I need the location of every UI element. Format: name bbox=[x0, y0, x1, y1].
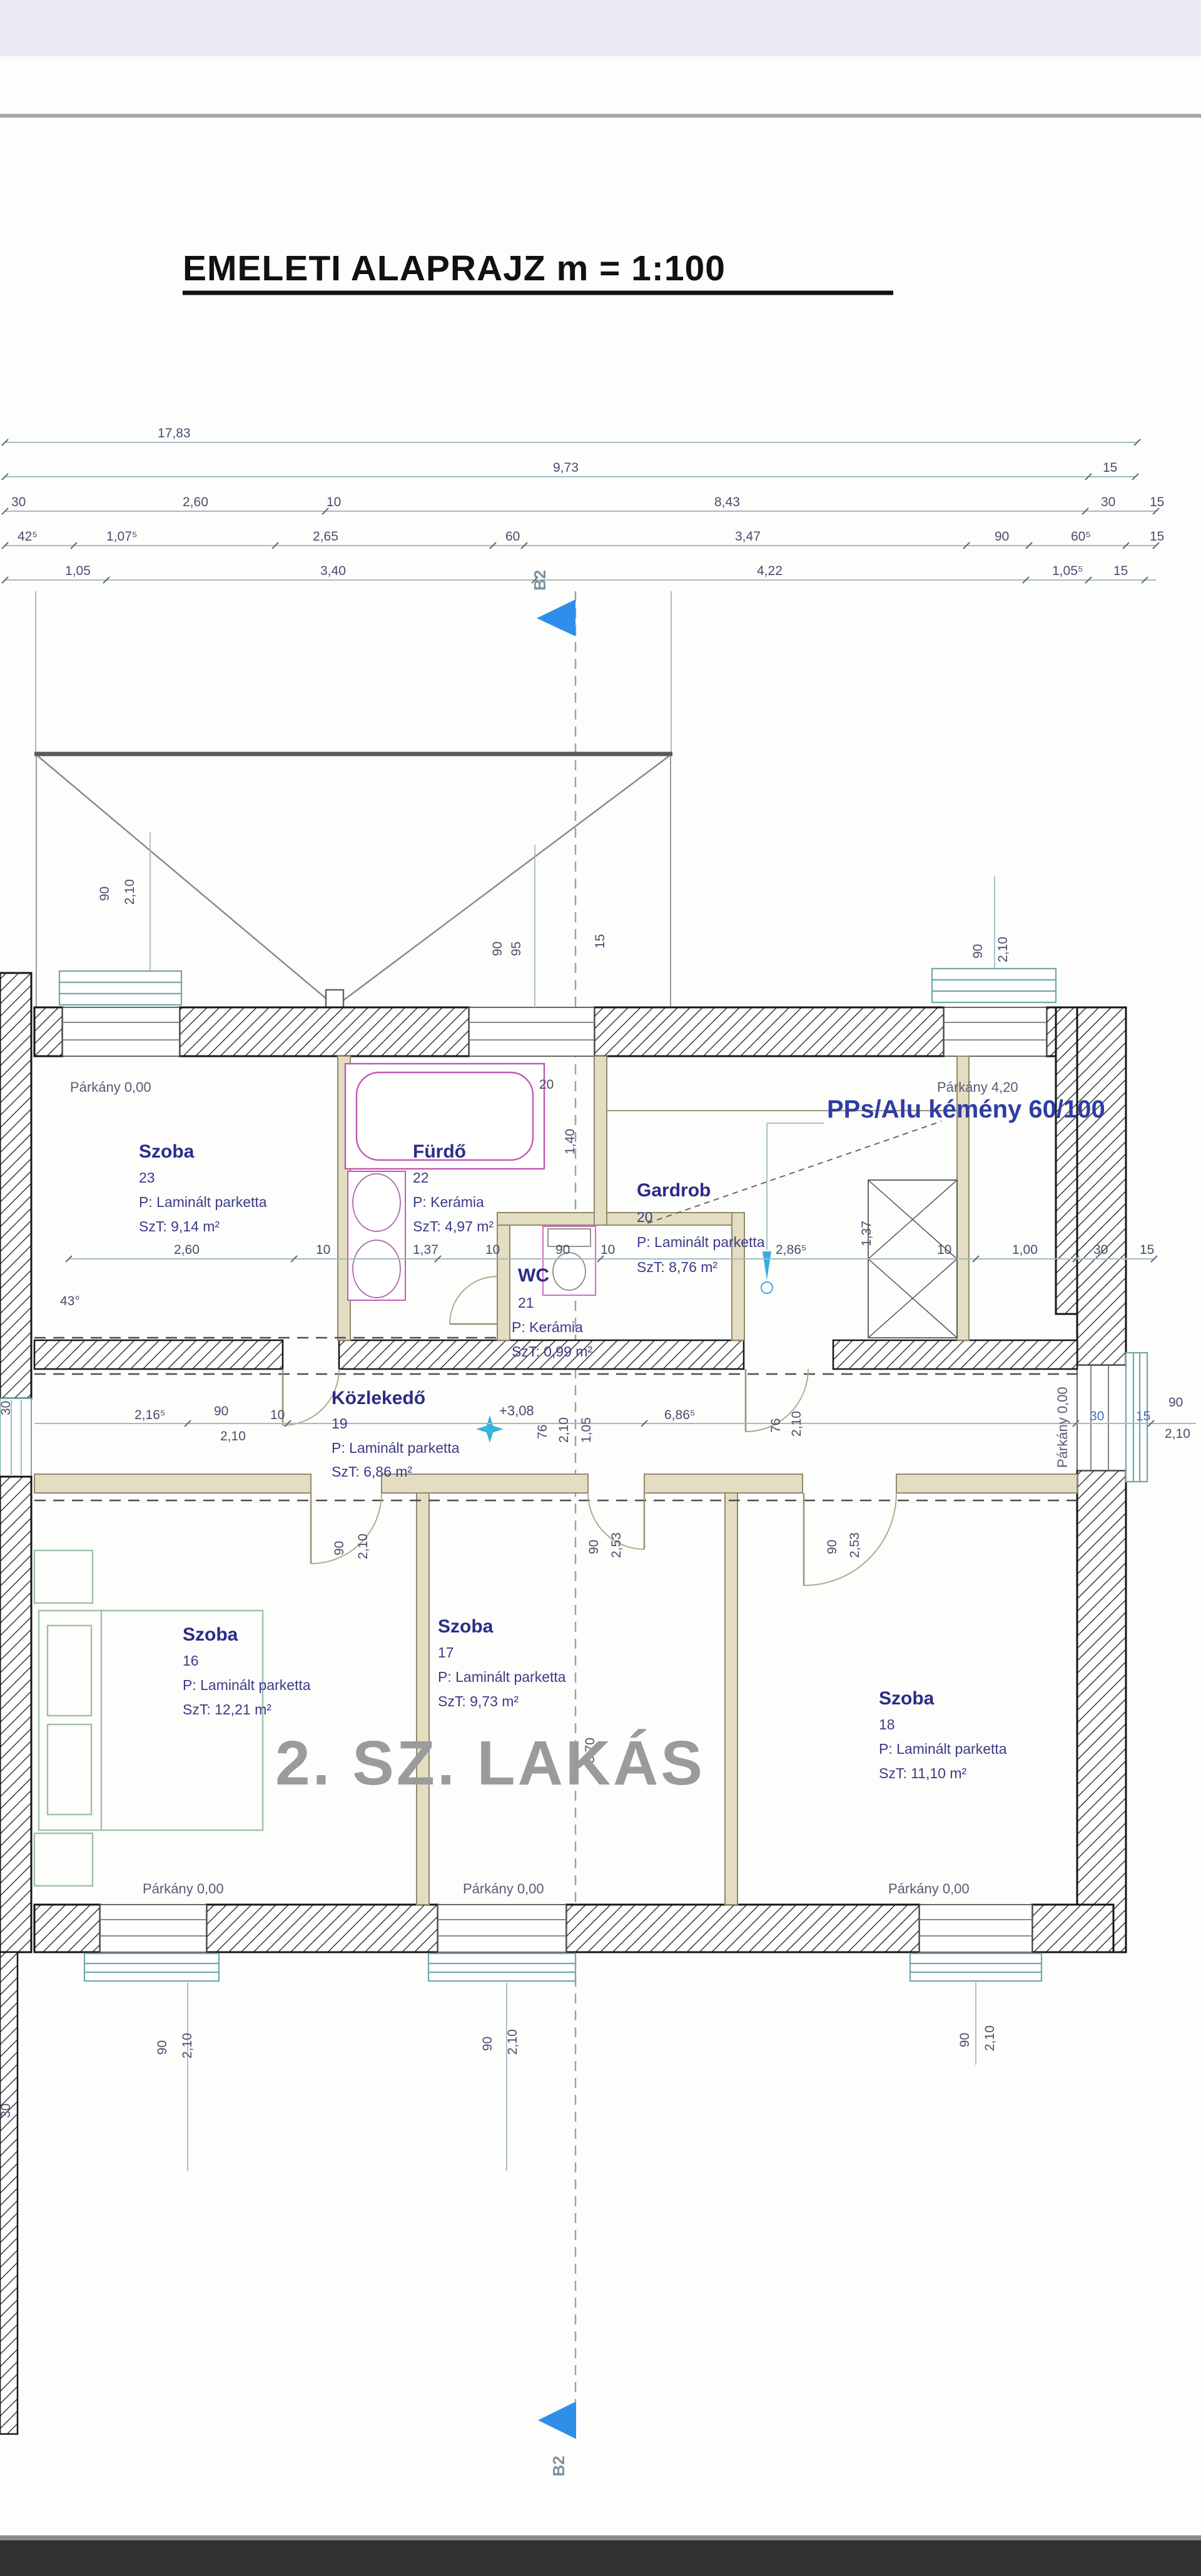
svg-text:30: 30 bbox=[0, 1401, 13, 1415]
room-szoba-16: Szoba 16 P: Laminált parketta SzT: 12,21… bbox=[183, 1624, 311, 1718]
svg-text:15: 15 bbox=[1113, 564, 1128, 578]
svg-text:22: 22 bbox=[413, 1169, 429, 1186]
chimney-label: PPs/Alu kémény 60/100 bbox=[827, 1096, 1105, 1123]
svg-text:10: 10 bbox=[937, 1243, 951, 1257]
svg-text:6,86⁵: 6,86⁵ bbox=[664, 1408, 696, 1422]
svg-text:15: 15 bbox=[1140, 1243, 1154, 1257]
wardrobe-rod bbox=[647, 1121, 941, 1223]
svg-text:1,07⁵: 1,07⁵ bbox=[106, 529, 138, 544]
svg-text:Szoba: Szoba bbox=[438, 1616, 494, 1637]
svg-text:90: 90 bbox=[155, 2040, 170, 2055]
toilet bbox=[543, 1226, 595, 1295]
svg-text:2,10: 2,10 bbox=[220, 1429, 246, 1443]
svg-text:WC: WC bbox=[518, 1265, 549, 1286]
svg-text:30: 30 bbox=[11, 495, 26, 509]
svg-text:90: 90 bbox=[555, 1243, 570, 1257]
svg-text:2,10: 2,10 bbox=[557, 1417, 571, 1443]
svg-text:30: 30 bbox=[1093, 1243, 1108, 1257]
svg-text:8,43: 8,43 bbox=[714, 495, 740, 509]
svg-text:P: Laminált parketta: P: Laminált parketta bbox=[637, 1234, 765, 1250]
dimension-lines bbox=[5, 442, 1156, 754]
section-arrow-top bbox=[537, 599, 575, 636]
svg-text:90: 90 bbox=[587, 1540, 601, 1554]
svg-text:2,10: 2,10 bbox=[789, 1411, 804, 1437]
svg-text:Párkány 0,00: Párkány 0,00 bbox=[70, 1079, 151, 1095]
dimension-row-corridor: 2,16⁵ 90 2,10 10 76 2,10 1,05 6,86⁵ 76 2… bbox=[34, 1395, 1196, 1443]
nightstand-1 bbox=[34, 1550, 93, 1603]
svg-text:2,16⁵: 2,16⁵ bbox=[134, 1408, 166, 1422]
door-wc bbox=[450, 1276, 497, 1324]
svg-text:10: 10 bbox=[600, 1243, 615, 1257]
svg-text:1,37: 1,37 bbox=[859, 1221, 874, 1246]
svg-text:SzT: 8,76 m²: SzT: 8,76 m² bbox=[637, 1259, 717, 1275]
svg-text:20: 20 bbox=[637, 1209, 653, 1225]
svg-text:60: 60 bbox=[505, 529, 520, 544]
svg-text:Párkány 0,00: Párkány 0,00 bbox=[143, 1881, 224, 1896]
room-gardrob-20: Gardrob 20 P: Laminált parketta SzT: 8,7… bbox=[637, 1180, 765, 1275]
door-corridor-north bbox=[283, 1369, 339, 1425]
unit-watermark: 2. SZ. LAKÁS bbox=[275, 1728, 705, 1798]
dimension-row-mid: 2,60 10 1,37 10 90 10 2,86⁵ 10 1,00 30 1… bbox=[66, 1221, 1157, 1262]
svg-text:Szoba: Szoba bbox=[879, 1688, 935, 1709]
svg-text:1,05⁵: 1,05⁵ bbox=[1052, 564, 1083, 578]
svg-text:3,40: 3,40 bbox=[320, 564, 346, 578]
svg-text:15: 15 bbox=[1150, 495, 1164, 509]
svg-text:90: 90 bbox=[1168, 1395, 1183, 1410]
dimension-labels-top: 17,83 9,73 15 30 2,60 10 8,43 30 15 42⁵ … bbox=[11, 426, 1164, 578]
svg-text:SzT: 0,99 m²: SzT: 0,99 m² bbox=[512, 1343, 592, 1360]
svg-text:2,86⁵: 2,86⁵ bbox=[776, 1243, 807, 1257]
svg-text:Szoba: Szoba bbox=[183, 1624, 238, 1645]
svg-text:10: 10 bbox=[327, 495, 341, 509]
svg-text:10: 10 bbox=[316, 1243, 330, 1257]
svg-text:3,47: 3,47 bbox=[735, 529, 761, 544]
bottom-window-2 bbox=[438, 1905, 566, 1952]
svg-text:2,53: 2,53 bbox=[609, 1532, 624, 1558]
interior-wall-b bbox=[34, 1474, 1077, 1493]
svg-text:42⁵: 42⁵ bbox=[18, 529, 38, 544]
svg-text:Párkány 4,20: Párkány 4,20 bbox=[937, 1079, 1018, 1095]
svg-text:10: 10 bbox=[270, 1408, 285, 1422]
svg-text:Párkány 0,00: Párkány 0,00 bbox=[888, 1881, 970, 1896]
svg-text:90: 90 bbox=[971, 944, 985, 959]
level-value: +3,08 bbox=[499, 1403, 534, 1418]
section-label-bottom: B2 bbox=[549, 2456, 568, 2477]
room-szoba-23: Szoba 23 P: Laminált parketta SzT: 9,14 … bbox=[139, 1141, 267, 1235]
bottom-wall bbox=[34, 1905, 1113, 1952]
svg-text:P: Laminált parketta: P: Laminált parketta bbox=[879, 1741, 1007, 1757]
svg-text:2,65: 2,65 bbox=[313, 529, 338, 544]
chimney-marker: PPs/Alu kémény 60/100 bbox=[761, 1096, 1105, 1293]
svg-text:Párkány 0,00: Párkány 0,00 bbox=[463, 1881, 544, 1896]
bottom-window-1 bbox=[100, 1905, 206, 1952]
bottom-rule bbox=[0, 2535, 1201, 2540]
svg-text:2,60: 2,60 bbox=[183, 495, 208, 509]
svg-text:2,10: 2,10 bbox=[505, 2029, 520, 2055]
top-rule bbox=[0, 114, 1201, 118]
room-szoba-17: Szoba 17 P: Laminált parketta SzT: 9,73 … bbox=[438, 1616, 566, 1709]
svg-text:P: Laminált parketta: P: Laminált parketta bbox=[139, 1194, 267, 1210]
svg-text:Szoba: Szoba bbox=[139, 1141, 195, 1162]
svg-text:90: 90 bbox=[995, 529, 1009, 544]
svg-text:76: 76 bbox=[769, 1418, 783, 1433]
svg-text:1,05: 1,05 bbox=[65, 564, 91, 578]
svg-text:1,40: 1,40 bbox=[563, 1129, 577, 1154]
bottom-window-sills bbox=[84, 1953, 1041, 1981]
top-window-1 bbox=[63, 1007, 180, 1056]
washbasin-2 bbox=[353, 1240, 400, 1298]
top-wall bbox=[34, 1007, 1113, 1056]
svg-text:90: 90 bbox=[958, 2033, 972, 2047]
svg-text:90: 90 bbox=[98, 887, 112, 901]
svg-text:76: 76 bbox=[535, 1425, 550, 1439]
svg-text:17: 17 bbox=[438, 1644, 454, 1661]
bottom-band bbox=[0, 2540, 1201, 2576]
pillow-1 bbox=[48, 1626, 91, 1716]
svg-text:20: 20 bbox=[539, 1077, 554, 1092]
svg-text:P: Laminált parketta: P: Laminált parketta bbox=[183, 1677, 311, 1693]
svg-text:2,10: 2,10 bbox=[1165, 1427, 1190, 1441]
page-title: EMELETI ALAPRAJZ m = 1:100 bbox=[183, 248, 726, 288]
top-window-2 bbox=[469, 1007, 594, 1056]
wall-wc-right bbox=[732, 1213, 744, 1340]
section-label-top: B2 bbox=[530, 570, 549, 591]
svg-text:SzT: 4,97 m²: SzT: 4,97 m² bbox=[413, 1218, 494, 1235]
wall-wc-left bbox=[497, 1213, 510, 1340]
washbasin-counter bbox=[348, 1171, 405, 1300]
svg-text:P: Kerámia: P: Kerámia bbox=[512, 1319, 583, 1335]
svg-text:95: 95 bbox=[509, 942, 524, 956]
svg-text:21: 21 bbox=[518, 1295, 534, 1311]
svg-text:Gardrob: Gardrob bbox=[637, 1180, 711, 1201]
chimney-arrow-icon bbox=[763, 1251, 771, 1280]
nightstand-2 bbox=[34, 1833, 93, 1886]
pillow-2 bbox=[48, 1724, 91, 1815]
svg-text:1,37: 1,37 bbox=[413, 1243, 438, 1257]
wall-szoba17-18 bbox=[725, 1493, 737, 1905]
room-kozlekedo-19: Közlekedő 19 P: Laminált parketta SzT: 6… bbox=[332, 1388, 460, 1480]
svg-text:P: Kerámia: P: Kerámia bbox=[413, 1194, 484, 1210]
roof-angle: 43° bbox=[60, 1294, 80, 1308]
svg-text:SzT: 9,14 m²: SzT: 9,14 m² bbox=[139, 1218, 220, 1235]
svg-text:10: 10 bbox=[485, 1243, 500, 1257]
svg-text:90: 90 bbox=[480, 2037, 495, 2051]
svg-text:2,10: 2,10 bbox=[356, 1534, 370, 1559]
svg-text:18: 18 bbox=[879, 1716, 895, 1733]
svg-text:SzT: 9,73 m²: SzT: 9,73 m² bbox=[438, 1693, 519, 1709]
svg-text:2,10: 2,10 bbox=[123, 879, 137, 905]
svg-text:2,10: 2,10 bbox=[996, 937, 1010, 962]
section-arrow-bottom bbox=[538, 2401, 576, 2439]
top-band bbox=[0, 0, 1201, 56]
svg-text:17,83: 17,83 bbox=[158, 426, 191, 440]
svg-text:2,53: 2,53 bbox=[848, 1532, 862, 1558]
svg-text:90: 90 bbox=[490, 942, 505, 956]
svg-text:1,00: 1,00 bbox=[1012, 1243, 1038, 1257]
svg-text:2,10: 2,10 bbox=[180, 2033, 195, 2059]
svg-text:15: 15 bbox=[1136, 1409, 1150, 1423]
svg-text:9,73: 9,73 bbox=[553, 461, 579, 475]
svg-text:30: 30 bbox=[1090, 1409, 1104, 1423]
svg-text:90: 90 bbox=[825, 1540, 839, 1554]
wall-furdo-right bbox=[594, 1056, 607, 1225]
svg-text:15: 15 bbox=[1150, 529, 1164, 544]
svg-text:2,60: 2,60 bbox=[174, 1243, 200, 1257]
svg-text:P: Laminált parketta: P: Laminált parketta bbox=[438, 1669, 566, 1685]
svg-text:19: 19 bbox=[332, 1415, 348, 1432]
floor-plan-page: EMELETI ALAPRAJZ m = 1:100 17,83 9,73 15… bbox=[0, 0, 1201, 2576]
svg-text:15: 15 bbox=[593, 934, 607, 949]
svg-text:30: 30 bbox=[0, 2104, 13, 2118]
svg-text:2,10: 2,10 bbox=[983, 2025, 997, 2051]
washbasin-1 bbox=[353, 1174, 400, 1231]
bed bbox=[34, 1550, 263, 1886]
svg-text:23: 23 bbox=[139, 1169, 155, 1186]
svg-text:Közlekedő: Közlekedő bbox=[332, 1388, 425, 1408]
room-szoba-18: Szoba 18 P: Laminált parketta SzT: 11,10… bbox=[879, 1688, 1007, 1781]
top-window-sills bbox=[59, 969, 1056, 1005]
svg-text:1,05: 1,05 bbox=[579, 1417, 594, 1443]
svg-text:SzT: 11,10 m²: SzT: 11,10 m² bbox=[879, 1765, 967, 1781]
svg-text:30: 30 bbox=[1101, 495, 1115, 509]
top-window-3 bbox=[944, 1007, 1046, 1056]
svg-text:SzT: 12,21 m²: SzT: 12,21 m² bbox=[183, 1701, 271, 1718]
left-wall-strip: 30 30 bbox=[0, 973, 31, 2434]
wall-wc-top bbox=[497, 1213, 744, 1225]
wall-szoba16-17 bbox=[417, 1493, 429, 1905]
svg-text:4,22: 4,22 bbox=[757, 564, 783, 578]
svg-text:P: Laminált parketta: P: Laminált parketta bbox=[332, 1440, 460, 1456]
bottom-window-3 bbox=[920, 1905, 1032, 1952]
svg-text:16: 16 bbox=[183, 1652, 199, 1669]
svg-text:60⁵: 60⁵ bbox=[1071, 529, 1091, 544]
svg-text:15: 15 bbox=[1103, 461, 1117, 475]
svg-text:SzT: 6,86 m²: SzT: 6,86 m² bbox=[332, 1464, 412, 1480]
svg-text:90: 90 bbox=[214, 1404, 228, 1418]
svg-text:90: 90 bbox=[332, 1541, 347, 1555]
svg-text:Fürdő: Fürdő bbox=[413, 1141, 466, 1162]
svg-text:Párkány 0,00: Párkány 0,00 bbox=[1055, 1387, 1070, 1468]
